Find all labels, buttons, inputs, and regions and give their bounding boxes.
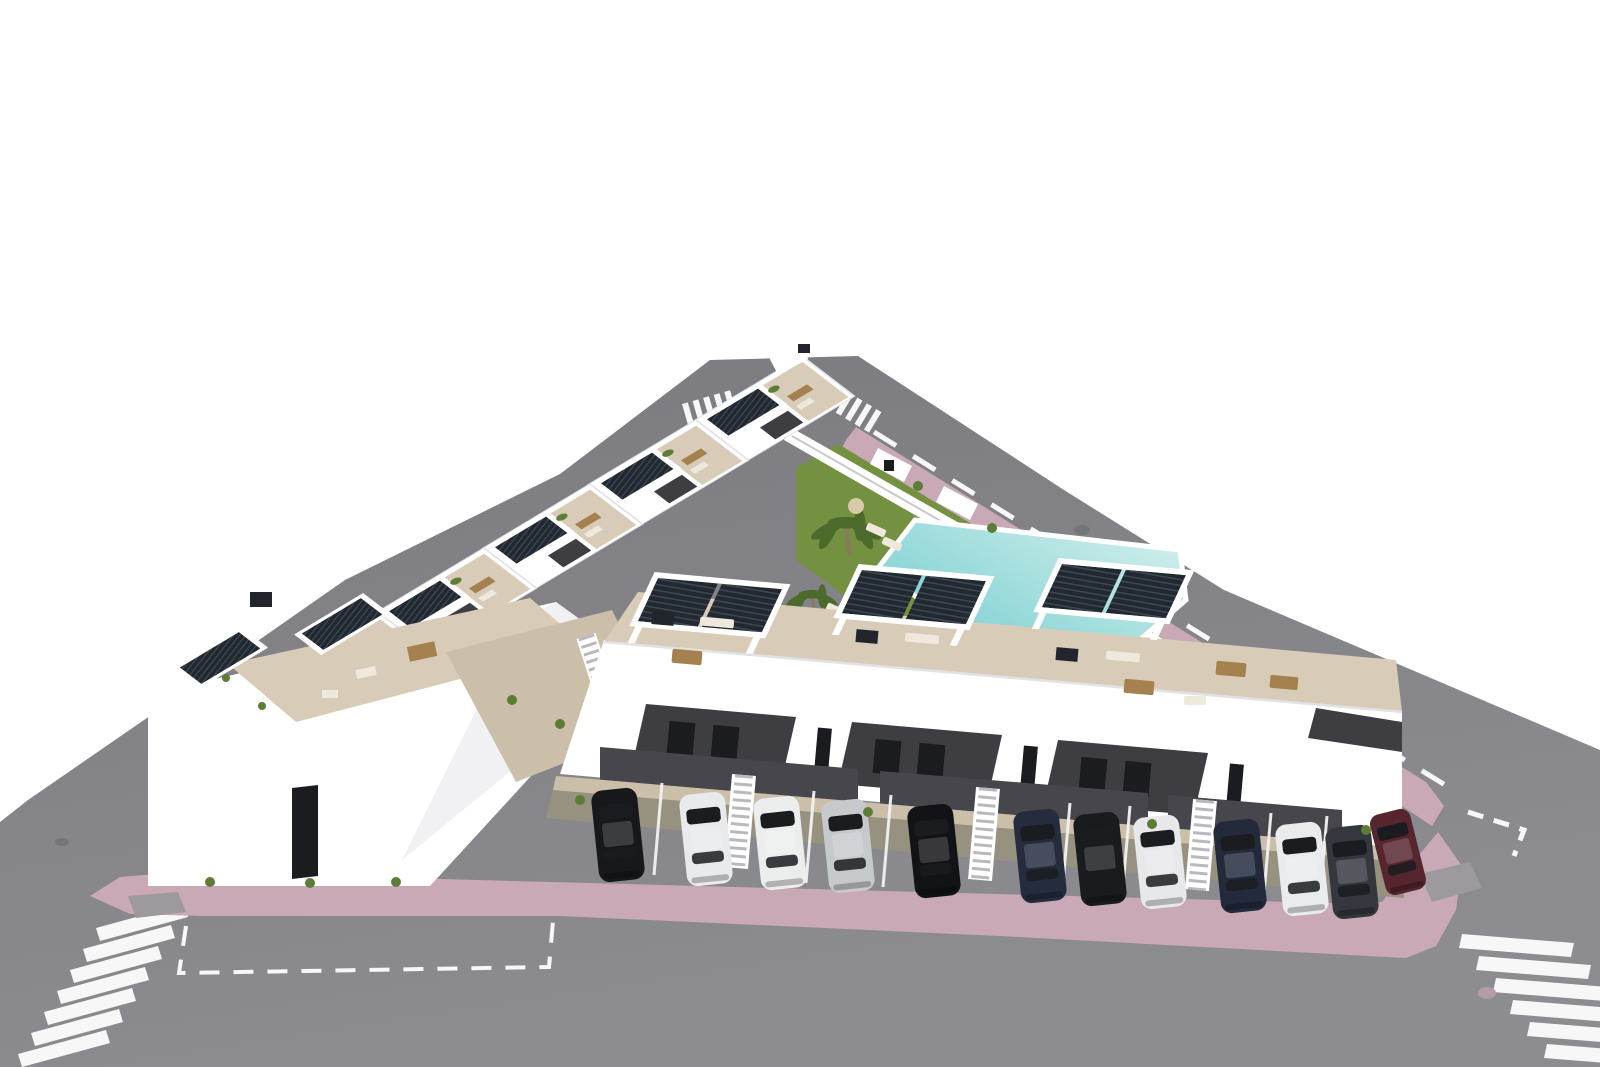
render-canvas bbox=[0, 0, 1600, 1067]
car bbox=[590, 787, 645, 883]
facade-window-strip bbox=[292, 785, 318, 879]
chimney bbox=[1055, 647, 1078, 662]
exterior-staircase bbox=[736, 775, 744, 868]
car bbox=[678, 791, 733, 887]
window bbox=[667, 721, 696, 757]
window bbox=[1079, 757, 1108, 793]
window bbox=[873, 739, 902, 775]
car bbox=[1212, 818, 1267, 914]
car bbox=[1274, 821, 1329, 917]
shrub bbox=[1361, 825, 1371, 835]
terrace-lounger bbox=[1184, 696, 1206, 705]
exterior-staircase bbox=[980, 788, 988, 880]
terrace-lounger bbox=[322, 690, 338, 698]
planter-shrub bbox=[987, 523, 997, 533]
terrace-sofa bbox=[1123, 679, 1154, 696]
chimney bbox=[798, 344, 810, 353]
planter-shrub bbox=[913, 481, 923, 491]
planter-shrub bbox=[555, 719, 565, 729]
planter-shrub bbox=[507, 695, 517, 705]
manhole-cover bbox=[1478, 987, 1496, 999]
shrub bbox=[391, 877, 401, 887]
chimney bbox=[855, 629, 878, 644]
aerial-render bbox=[0, 0, 1600, 1067]
manhole-cover bbox=[1074, 525, 1090, 535]
window bbox=[711, 725, 740, 761]
shrub bbox=[205, 877, 215, 887]
chimney bbox=[250, 592, 272, 607]
car bbox=[1072, 811, 1127, 907]
terrace-sofa bbox=[671, 649, 702, 666]
window bbox=[917, 743, 946, 779]
car bbox=[906, 803, 961, 899]
terrace-plant bbox=[258, 702, 266, 710]
car bbox=[752, 795, 807, 891]
car bbox=[1012, 808, 1067, 904]
shrub bbox=[305, 878, 315, 888]
shed-door bbox=[884, 460, 894, 471]
shrub bbox=[1147, 819, 1157, 829]
shrub bbox=[863, 807, 873, 817]
car bbox=[1132, 814, 1187, 910]
exterior-staircase bbox=[1197, 800, 1205, 890]
terrace-plant bbox=[222, 674, 230, 682]
chimney bbox=[651, 611, 674, 626]
car bbox=[1324, 824, 1379, 920]
terrace-sofa bbox=[1215, 661, 1246, 678]
sun-umbrella bbox=[848, 498, 864, 514]
terrace-sofa bbox=[1269, 675, 1298, 690]
manhole-cover bbox=[55, 838, 69, 846]
shrub bbox=[575, 795, 585, 805]
